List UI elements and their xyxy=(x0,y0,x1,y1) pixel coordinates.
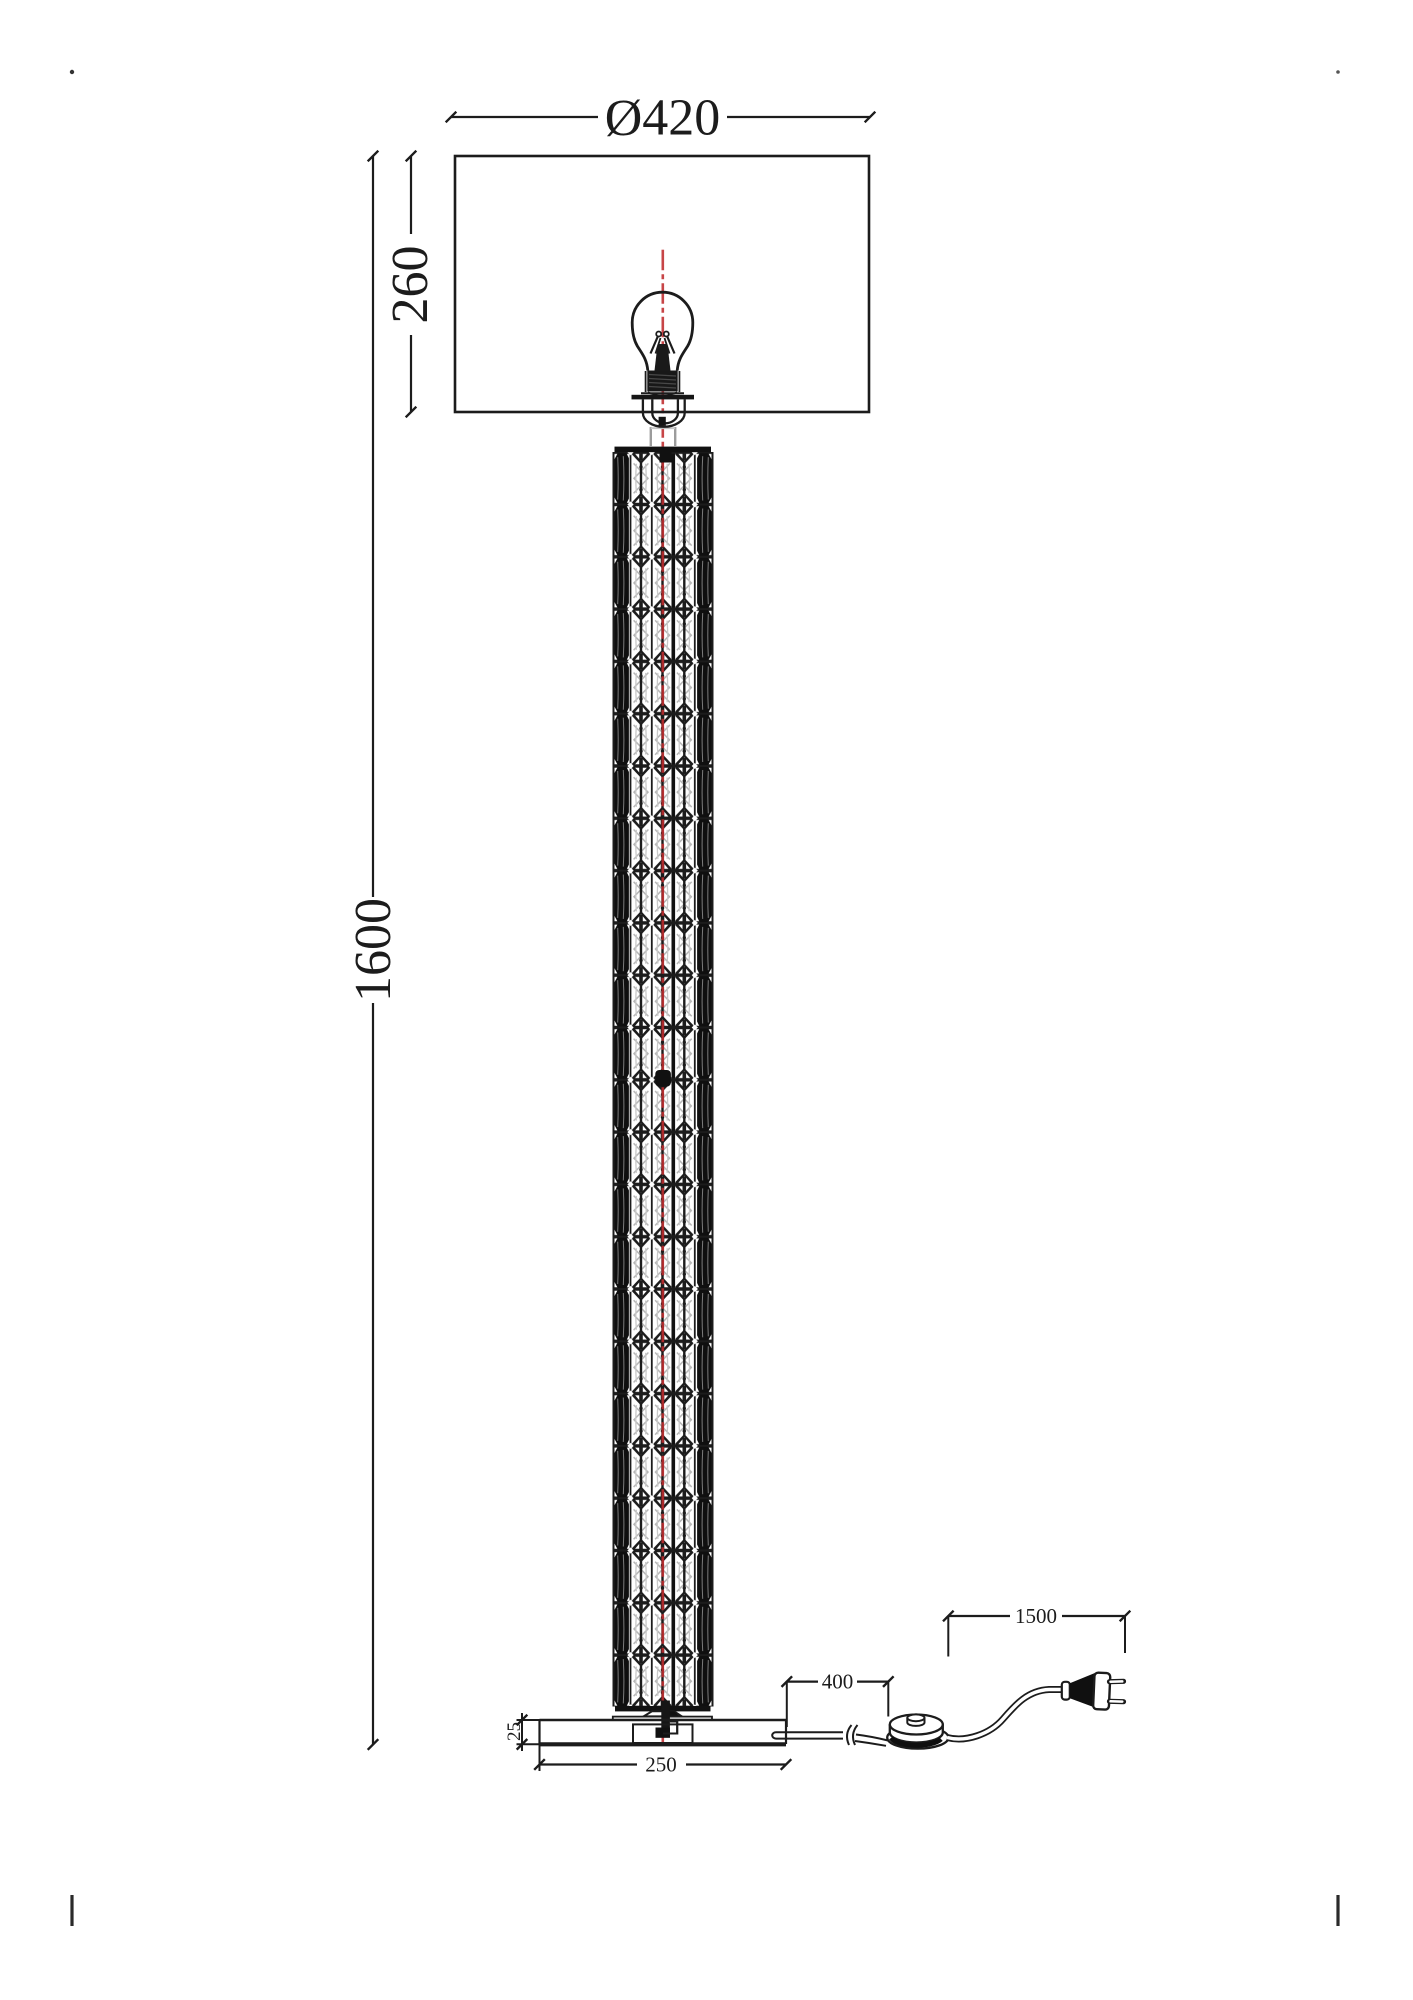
svg-text:250: 250 xyxy=(645,1753,677,1777)
svg-text:1600: 1600 xyxy=(345,898,402,1002)
svg-text:400: 400 xyxy=(822,1670,854,1694)
svg-text:260: 260 xyxy=(382,246,439,324)
svg-text:25: 25 xyxy=(504,1722,525,1741)
svg-text:1500: 1500 xyxy=(1015,1604,1057,1628)
svg-text:Ø420: Ø420 xyxy=(605,90,721,147)
